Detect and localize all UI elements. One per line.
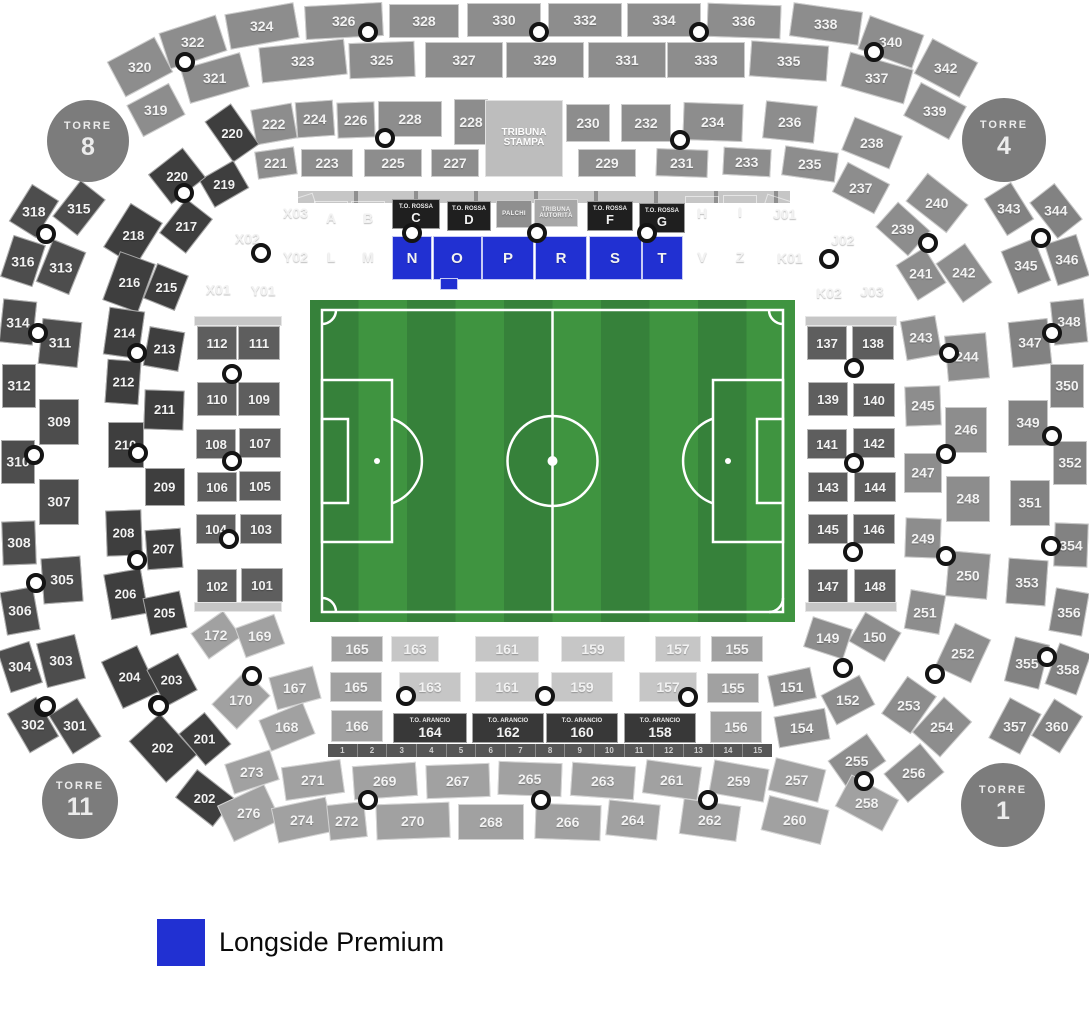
- section-label: 348: [1057, 315, 1080, 329]
- section-107[interactable]: 107: [239, 428, 281, 458]
- section-label: 224: [303, 112, 326, 126]
- section-label: G: [657, 215, 667, 228]
- section-305[interactable]: 305: [40, 556, 83, 605]
- section-333[interactable]: 333: [667, 42, 745, 78]
- section-150[interactable]: 150: [848, 612, 901, 662]
- section-271[interactable]: 271: [281, 759, 345, 801]
- section-label: 255: [845, 754, 868, 768]
- section-label: 346: [1055, 253, 1078, 267]
- section-label: 332: [573, 13, 596, 27]
- section-335[interactable]: 335: [749, 40, 829, 81]
- section-v[interactable]: V: [685, 241, 719, 273]
- section-label: 103: [250, 523, 272, 536]
- section-338[interactable]: 338: [789, 2, 863, 45]
- section-105[interactable]: 105: [239, 471, 281, 501]
- section-237[interactable]: 237: [832, 162, 890, 215]
- section-label: 155: [721, 681, 744, 695]
- section-y02[interactable]: Y02: [270, 239, 320, 275]
- section-233[interactable]: 233: [722, 147, 771, 177]
- section-label: 236: [778, 115, 801, 129]
- section-155[interactable]: 155: [711, 636, 763, 662]
- section-151[interactable]: 151: [767, 667, 817, 707]
- section-231[interactable]: 231: [656, 148, 709, 178]
- section-label: 258: [855, 796, 878, 810]
- section-label: B: [363, 211, 373, 225]
- section-102[interactable]: 102: [197, 569, 237, 603]
- section-112[interactable]: 112: [197, 326, 237, 360]
- gate-marker: [149, 696, 169, 716]
- section-label: 217: [175, 220, 197, 233]
- section-label: 263: [591, 774, 614, 788]
- section-232[interactable]: 232: [621, 104, 671, 142]
- section-r[interactable]: R: [535, 236, 587, 280]
- section-label: 170: [229, 693, 252, 707]
- section-j03[interactable]: J03: [855, 270, 889, 315]
- section-336[interactable]: 336: [706, 3, 781, 40]
- section-353[interactable]: 353: [1005, 558, 1048, 607]
- section-219[interactable]: 219: [199, 160, 250, 208]
- row-cell-14: 14: [713, 744, 743, 757]
- gate-marker: [925, 664, 945, 684]
- section-l[interactable]: L: [314, 241, 348, 273]
- section-157[interactable]: 157: [655, 636, 701, 662]
- gate-marker: [127, 343, 147, 363]
- section-268[interactable]: 268: [458, 804, 524, 840]
- gate-marker: [36, 224, 56, 244]
- section-303[interactable]: 303: [36, 634, 86, 688]
- tower-name: TORRE: [979, 784, 1027, 796]
- section-label: 235: [798, 157, 821, 171]
- section-label: 157: [666, 642, 689, 656]
- section-307[interactable]: 307: [39, 479, 79, 525]
- section-label: 164: [418, 725, 441, 739]
- section-label: J02: [831, 233, 854, 247]
- section-165[interactable]: 165: [331, 636, 383, 662]
- gate-marker: [698, 790, 718, 810]
- section-label: 354: [1059, 538, 1082, 552]
- section-222[interactable]: 222: [250, 103, 298, 146]
- section-109[interactable]: 109: [238, 382, 280, 416]
- section-label: 201: [194, 732, 216, 745]
- section-label: 307: [47, 495, 70, 509]
- section-label: 334: [652, 13, 675, 27]
- section-159[interactable]: 159: [561, 636, 625, 662]
- section-309[interactable]: 309: [39, 399, 79, 445]
- section-356[interactable]: 356: [1048, 587, 1089, 636]
- section-a[interactable]: A: [314, 201, 348, 235]
- tower-name: TORRE: [56, 780, 104, 792]
- section-213[interactable]: 213: [143, 326, 185, 372]
- section-label: 342: [934, 61, 957, 75]
- section-327[interactable]: 327: [425, 42, 503, 78]
- section-343[interactable]: 343: [984, 182, 1034, 236]
- section-331[interactable]: 331: [588, 42, 666, 78]
- section-325[interactable]: 325: [348, 41, 415, 79]
- row-cell-3: 3: [386, 744, 416, 757]
- row-cell-4: 4: [416, 744, 446, 757]
- section-label: 158: [648, 725, 671, 739]
- section-label: 222: [262, 117, 285, 131]
- section-label: 321: [203, 71, 226, 85]
- section-315[interactable]: 315: [52, 180, 106, 236]
- section-235[interactable]: 235: [781, 145, 839, 182]
- section-236[interactable]: 236: [762, 100, 818, 143]
- section-b[interactable]: B: [351, 201, 385, 235]
- section-label: 237: [849, 181, 872, 195]
- gate-marker: [175, 52, 195, 72]
- tower-number: 1: [996, 797, 1010, 826]
- section-label: 202: [194, 791, 216, 804]
- row-cell-10: 10: [594, 744, 624, 757]
- section-110[interactable]: 110: [197, 382, 237, 416]
- section-140[interactable]: 140: [853, 383, 895, 417]
- section-238[interactable]: 238: [841, 117, 903, 170]
- section-260[interactable]: 260: [761, 795, 830, 845]
- section-350[interactable]: 350: [1050, 364, 1084, 408]
- section-label: 327: [452, 53, 475, 67]
- section-263[interactable]: 263: [570, 762, 636, 800]
- section-label: 271: [301, 773, 324, 787]
- section-label: 225: [381, 156, 404, 170]
- decor-block-3: [194, 602, 282, 612]
- gate-marker: [535, 686, 555, 706]
- section-label: 251: [913, 605, 936, 619]
- gate-marker: [689, 22, 709, 42]
- section-label: 145: [817, 523, 839, 536]
- section-143[interactable]: 143: [808, 472, 848, 502]
- section-323[interactable]: 323: [258, 39, 347, 84]
- section-j01[interactable]: J01: [759, 194, 811, 235]
- section-tribuna-stampa[interactable]: TRIBUNASTAMPA: [485, 100, 563, 177]
- section-247[interactable]: 247: [904, 453, 942, 493]
- section-label: L: [327, 250, 336, 264]
- section-242[interactable]: 242: [935, 243, 992, 303]
- section-label: 163: [418, 680, 441, 694]
- section-103[interactable]: 103: [240, 514, 282, 544]
- section-267[interactable]: 267: [425, 763, 490, 799]
- gate-marker: [36, 696, 56, 716]
- row-cell-13: 13: [683, 744, 713, 757]
- section-label: 276: [237, 806, 260, 820]
- section-label: 205: [154, 606, 176, 619]
- section-label: M: [362, 250, 374, 264]
- gate-marker: [219, 529, 239, 549]
- section-141[interactable]: 141: [807, 429, 847, 459]
- section-f[interactable]: T.O. ROSSAF: [587, 201, 633, 231]
- section-306[interactable]: 306: [0, 586, 41, 635]
- gate-marker: [396, 686, 416, 706]
- section-label: 112: [207, 337, 228, 350]
- section-211[interactable]: 211: [143, 389, 184, 430]
- tower-8: TORRE8: [47, 100, 129, 182]
- section-s[interactable]: S: [589, 236, 642, 280]
- section-169[interactable]: 169: [235, 614, 285, 658]
- section-label: 155: [725, 642, 748, 656]
- section-m[interactable]: M: [351, 241, 385, 273]
- section-label: 105: [249, 480, 271, 493]
- section-d[interactable]: T.O. ROSSAD: [447, 201, 491, 231]
- section-label: 241: [909, 267, 932, 281]
- section-label: 159: [570, 680, 593, 694]
- section-label: 147: [817, 580, 839, 593]
- section-label: X03: [283, 206, 308, 220]
- section-k02[interactable]: K02: [810, 270, 848, 316]
- section-273[interactable]: 273: [224, 749, 280, 794]
- decor-block-5: [805, 602, 897, 612]
- section-229[interactable]: 229: [578, 149, 636, 177]
- section-142[interactable]: 142: [853, 428, 895, 458]
- section-226[interactable]: 226: [336, 101, 375, 138]
- section-label: 215: [155, 281, 177, 294]
- section-228-2[interactable]: 228: [454, 99, 488, 145]
- section-145[interactable]: 145: [808, 514, 848, 544]
- section-159-2[interactable]: 159: [551, 672, 613, 702]
- pitch-svg: [310, 300, 795, 622]
- section-212[interactable]: 212: [105, 359, 142, 405]
- gate-marker: [375, 128, 395, 148]
- section-332[interactable]: 332: [548, 3, 622, 37]
- legend-swatch-longside-premium: [157, 919, 205, 966]
- section-label: 335: [777, 54, 800, 68]
- section-111[interactable]: 111: [238, 326, 280, 360]
- section-label: 355: [1015, 656, 1038, 670]
- section-label: 324: [250, 19, 273, 33]
- section-label: 315: [67, 201, 90, 215]
- gate-marker: [843, 542, 863, 562]
- section-328[interactable]: 328: [389, 4, 459, 38]
- section-label: 231: [670, 156, 693, 170]
- section-label: 230: [576, 116, 599, 130]
- section-155-2[interactable]: 155: [707, 673, 759, 703]
- pitch: [310, 300, 795, 622]
- section-label: 139: [817, 393, 839, 406]
- section-202[interactable]: 202: [129, 713, 198, 783]
- tower-11: TORRE11: [42, 763, 118, 839]
- section-palchi[interactable]: PALCHI: [496, 200, 532, 228]
- section-209[interactable]: 209: [145, 468, 185, 506]
- section-329[interactable]: 329: [506, 42, 584, 78]
- section-i[interactable]: I: [723, 195, 757, 229]
- section-x01[interactable]: X01: [199, 267, 237, 313]
- section-label: 304: [8, 660, 31, 674]
- section-label: 157: [656, 680, 679, 694]
- gate-marker: [128, 443, 148, 463]
- section-351[interactable]: 351: [1010, 480, 1050, 526]
- section-161-2[interactable]: 161: [475, 672, 539, 702]
- section-217[interactable]: 217: [159, 198, 213, 254]
- section-241[interactable]: 241: [895, 247, 946, 301]
- section-label: 140: [863, 394, 885, 407]
- section-138[interactable]: 138: [852, 326, 894, 360]
- gate-marker: [527, 223, 547, 243]
- section-224[interactable]: 224: [295, 100, 335, 139]
- section-label: 319: [144, 103, 167, 117]
- row-cell-6: 6: [475, 744, 505, 757]
- section-label: S: [610, 251, 620, 266]
- section-label: 161: [495, 642, 518, 656]
- section-label: 305: [50, 573, 73, 587]
- section-152[interactable]: 152: [821, 675, 876, 726]
- section-label: 329: [533, 53, 556, 67]
- section-227[interactable]: 227: [431, 149, 479, 177]
- section-label: 219: [213, 178, 235, 191]
- section-label: STAMPA: [504, 138, 545, 148]
- section-139[interactable]: 139: [808, 382, 848, 416]
- section-161[interactable]: 161: [475, 636, 539, 662]
- section-label: 273: [240, 765, 263, 779]
- section-207[interactable]: 207: [145, 528, 184, 570]
- section-label: 351: [1018, 496, 1041, 510]
- section-245[interactable]: 245: [904, 385, 941, 426]
- section-label: 343: [997, 202, 1020, 216]
- section-label: 254: [930, 720, 953, 734]
- gate-marker: [251, 243, 271, 263]
- section-label: 245: [911, 399, 934, 413]
- section-label: A: [326, 211, 336, 225]
- section-162[interactable]: T.O. ARANCIO162: [472, 713, 544, 743]
- section-163[interactable]: 163: [391, 636, 439, 662]
- section-167[interactable]: 167: [268, 666, 321, 711]
- section-label: J03: [860, 285, 883, 299]
- section-label: 344: [1044, 204, 1067, 218]
- section-z[interactable]: Z: [723, 241, 757, 273]
- gate-marker: [531, 790, 551, 810]
- row-cell-2: 2: [357, 744, 387, 757]
- section-label: 233: [735, 155, 758, 169]
- section-label: 337: [865, 71, 888, 85]
- section-148[interactable]: 148: [854, 569, 896, 603]
- section-label: 234: [701, 115, 724, 129]
- row-cell-9: 9: [564, 744, 594, 757]
- section-label: Y01: [251, 284, 276, 298]
- gate-marker: [637, 223, 657, 243]
- section-label: 302: [21, 718, 44, 732]
- section-205[interactable]: 205: [142, 590, 187, 635]
- section-168[interactable]: 168: [258, 702, 315, 752]
- section-261[interactable]: 261: [642, 759, 702, 800]
- section-223[interactable]: 223: [301, 149, 353, 177]
- section-label: 110: [207, 393, 228, 406]
- section-270[interactable]: 270: [375, 802, 450, 841]
- section-274[interactable]: 274: [271, 797, 333, 844]
- row-number-strip: 123456789101112131415: [328, 744, 772, 757]
- section-label: 309: [47, 415, 70, 429]
- section-label: 111: [249, 337, 269, 350]
- gate-marker: [24, 445, 44, 465]
- section-label: 108: [205, 438, 227, 451]
- section-264[interactable]: 264: [605, 799, 660, 840]
- section-172[interactable]: 172: [190, 610, 241, 659]
- section-230[interactable]: 230: [566, 104, 610, 142]
- section-label: 350: [1055, 379, 1078, 393]
- section-160[interactable]: T.O. ARANCIO160: [546, 713, 618, 743]
- section-234[interactable]: 234: [682, 102, 743, 142]
- section-137[interactable]: 137: [807, 326, 847, 360]
- section-225[interactable]: 225: [364, 149, 422, 177]
- section-158[interactable]: T.O. ARANCIO158: [624, 713, 696, 743]
- section-265[interactable]: 265: [497, 761, 562, 797]
- section-k01[interactable]: K01: [765, 240, 815, 276]
- section-label: 250: [956, 568, 979, 582]
- section-label: 347: [1018, 336, 1041, 350]
- section-156[interactable]: 156: [710, 711, 762, 743]
- section-248[interactable]: 248: [946, 476, 990, 522]
- gate-marker: [936, 444, 956, 464]
- decor-block-4: [805, 316, 897, 326]
- section-label: 212: [112, 376, 134, 389]
- section-251[interactable]: 251: [904, 589, 946, 635]
- section-324[interactable]: 324: [224, 2, 299, 50]
- section-149[interactable]: 149: [803, 616, 853, 659]
- tower-4: TORRE4: [962, 98, 1046, 182]
- section-label: 360: [1045, 719, 1068, 733]
- gate-marker: [1031, 228, 1051, 248]
- section-h[interactable]: H: [685, 196, 719, 230]
- section-360[interactable]: 360: [1031, 698, 1083, 753]
- section-p[interactable]: P: [482, 236, 534, 280]
- section-o[interactable]: O: [433, 236, 482, 280]
- section-label: 268: [479, 815, 502, 829]
- section-166[interactable]: 166: [331, 710, 383, 742]
- decor-block-2: [194, 316, 282, 326]
- section-label: 162: [496, 725, 519, 739]
- gate-marker: [936, 546, 956, 566]
- section-312[interactable]: 312: [2, 364, 36, 408]
- section-308[interactable]: 308: [1, 520, 37, 565]
- section-label: 220: [166, 170, 188, 183]
- section-label: 161: [495, 680, 518, 694]
- tower-number: 11: [67, 793, 93, 822]
- section-216[interactable]: 216: [102, 251, 155, 313]
- section-206[interactable]: 206: [103, 568, 148, 620]
- section-147[interactable]: 147: [808, 569, 848, 603]
- gate-marker: [833, 658, 853, 678]
- section-label: 253: [897, 698, 920, 712]
- section-label: 312: [7, 379, 30, 393]
- section-144[interactable]: 144: [854, 472, 896, 502]
- section-label: 141: [816, 438, 838, 451]
- section-301[interactable]: 301: [48, 697, 101, 754]
- section-106[interactable]: 106: [197, 472, 237, 502]
- gate-marker: [864, 42, 884, 62]
- section-label: 264: [621, 813, 644, 827]
- section-101[interactable]: 101: [241, 568, 283, 602]
- section-357[interactable]: 357: [988, 697, 1041, 755]
- section-221[interactable]: 221: [254, 146, 298, 179]
- section-label: 320: [128, 60, 151, 74]
- section-label: 102: [206, 580, 228, 593]
- section-label: 306: [8, 604, 31, 618]
- section-y01[interactable]: Y01: [246, 269, 280, 314]
- section-352[interactable]: 352: [1053, 441, 1087, 485]
- section-label: D: [464, 213, 473, 226]
- gate-marker: [28, 323, 48, 343]
- section-label: 323: [291, 54, 314, 68]
- section-146[interactable]: 146: [853, 514, 895, 544]
- section-label: 206: [115, 587, 137, 600]
- section-label: N: [407, 251, 418, 266]
- section-label: P: [503, 251, 513, 266]
- section-label: 242: [952, 266, 975, 280]
- section-154[interactable]: 154: [774, 708, 831, 749]
- section-164[interactable]: T.O. ARANCIO164: [393, 713, 467, 743]
- section-label: 274: [290, 813, 313, 827]
- section-label: 303: [49, 654, 72, 668]
- section-165-2[interactable]: 165: [330, 672, 382, 702]
- section-259[interactable]: 259: [708, 759, 769, 802]
- gate-marker: [222, 364, 242, 384]
- section-243[interactable]: 243: [900, 315, 942, 361]
